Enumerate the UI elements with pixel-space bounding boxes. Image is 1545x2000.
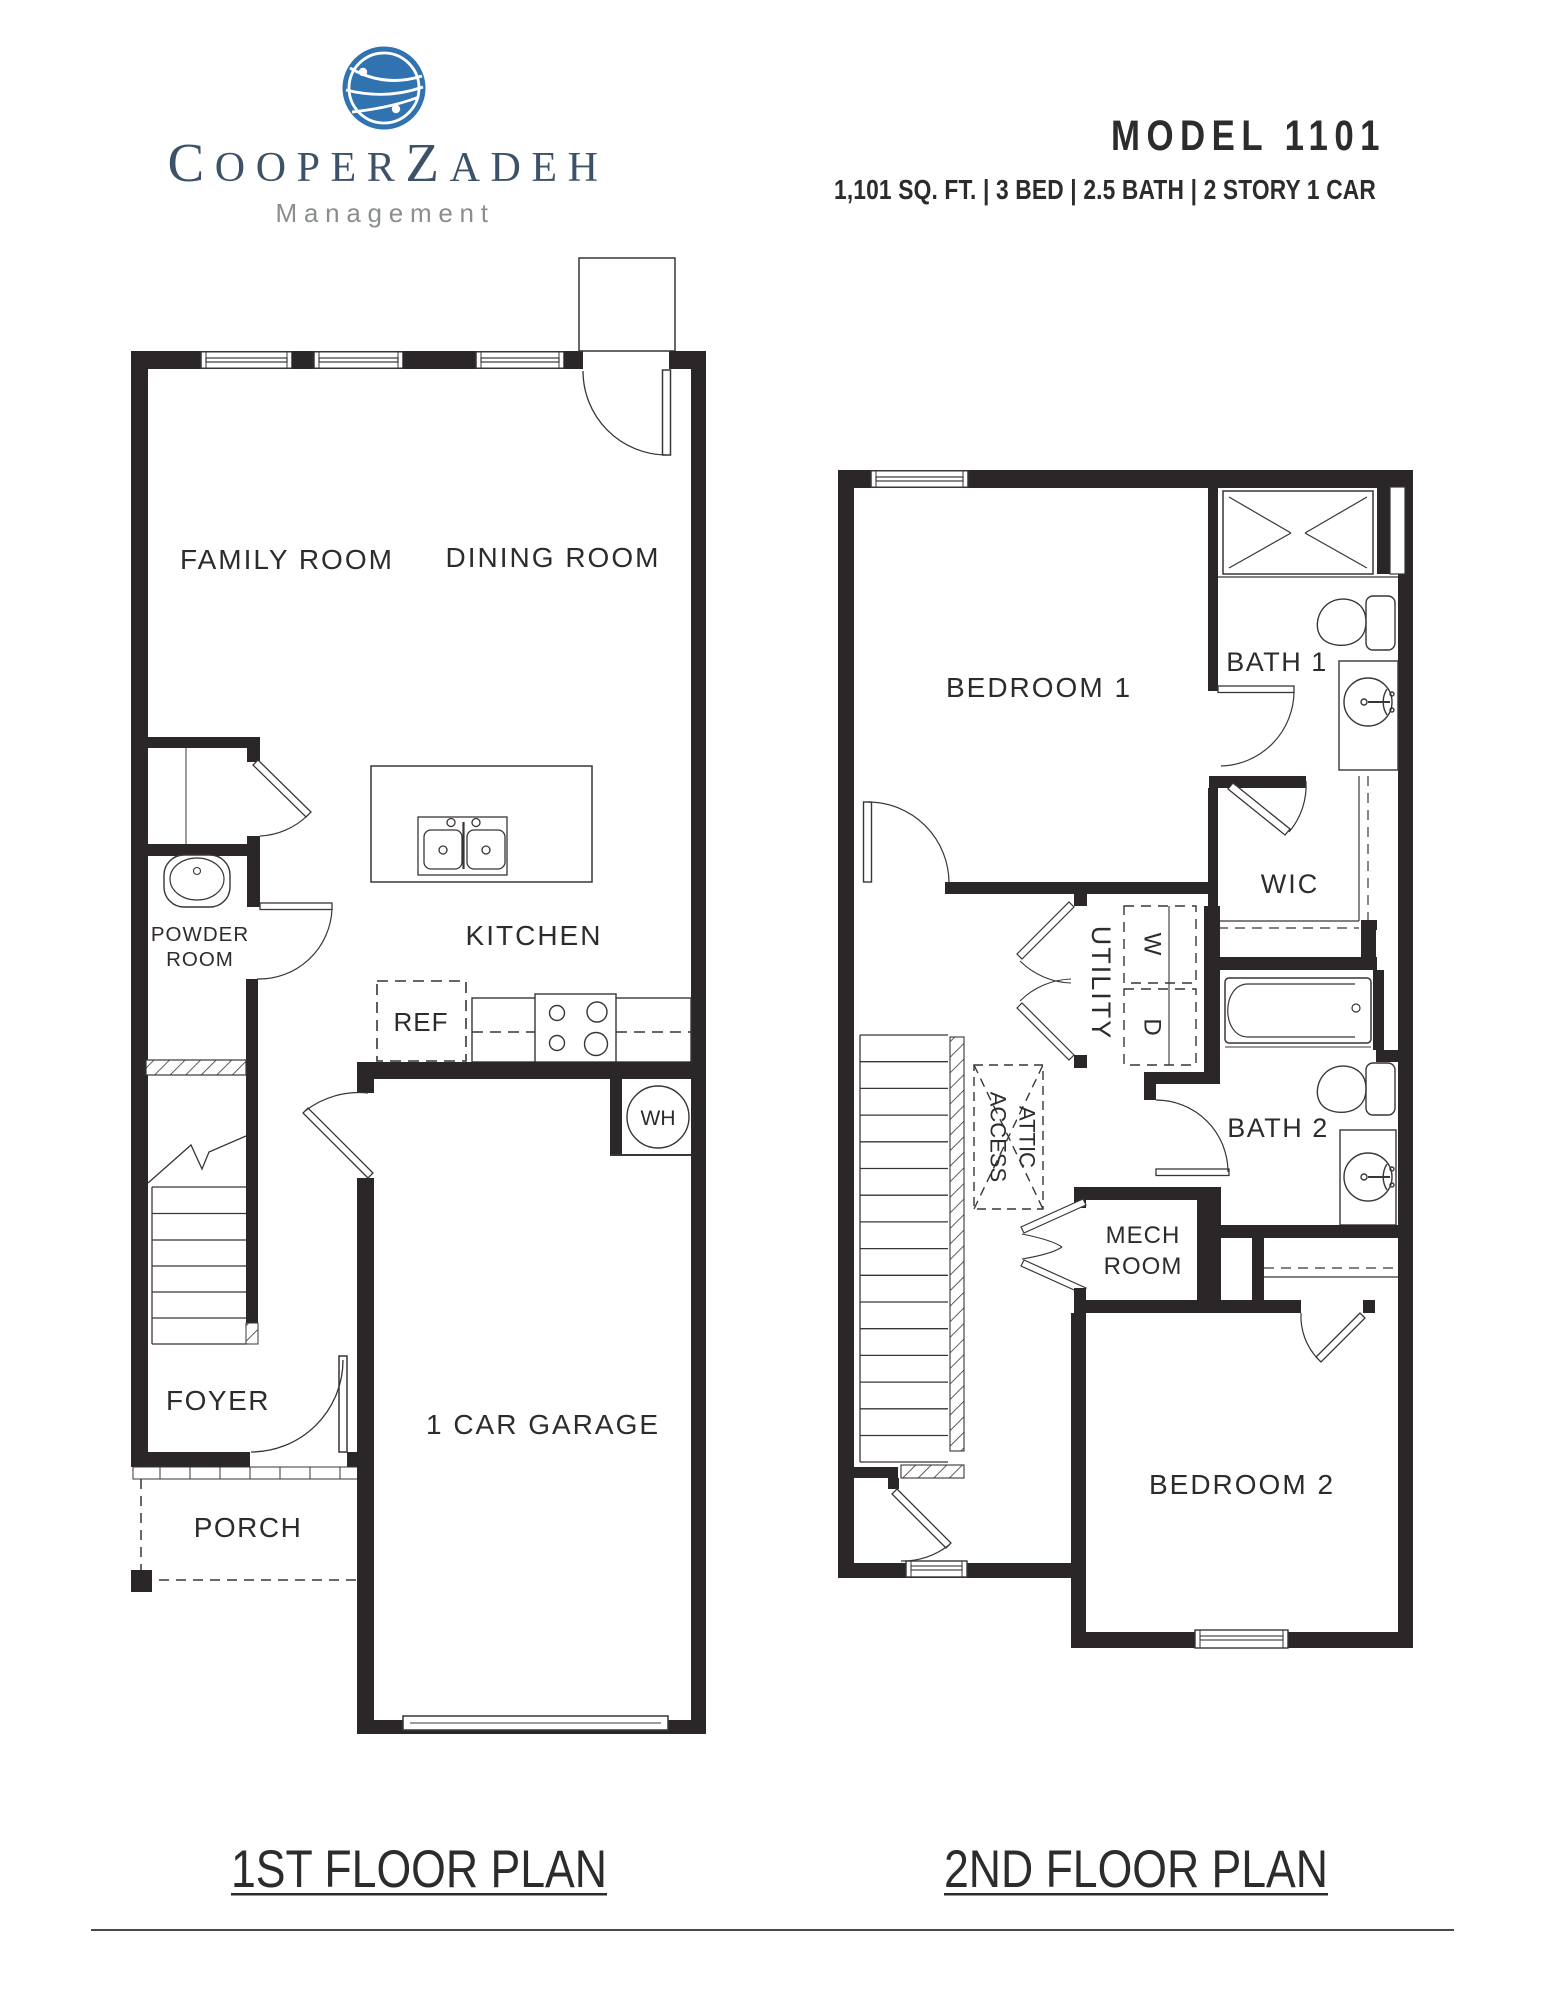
svg-text:DINING ROOM: DINING ROOM	[446, 542, 661, 573]
svg-text:WIC: WIC	[1261, 869, 1319, 899]
svg-text:1,101 SQ. FT. | 3 BED | 2.5 BA: 1,101 SQ. FT. | 3 BED | 2.5 BATH | 2 STO…	[834, 174, 1376, 205]
svg-text:FOYER: FOYER	[166, 1385, 270, 1416]
svg-text:REF: REF	[394, 1007, 449, 1037]
svg-text:KITCHEN: KITCHEN	[466, 920, 603, 951]
svg-text:BEDROOM 2: BEDROOM 2	[1149, 1469, 1335, 1500]
svg-text:BATH 2: BATH 2	[1227, 1113, 1329, 1143]
svg-text:FAMILY ROOM: FAMILY ROOM	[180, 544, 394, 575]
svg-text:1 CAR GARAGE: 1 CAR GARAGE	[426, 1409, 660, 1440]
svg-text:ROOM: ROOM	[1104, 1253, 1183, 1280]
svg-text:POWDER: POWDER	[151, 923, 249, 946]
svg-text:MECH: MECH	[1106, 1222, 1181, 1249]
svg-text:W: W	[1139, 933, 1166, 956]
svg-text:1ST FLOOR PLAN: 1ST FLOOR PLAN	[231, 1840, 607, 1899]
svg-text:Management: Management	[276, 198, 493, 228]
svg-text:WH: WH	[641, 1107, 676, 1130]
svg-text:MODEL 1101: MODEL 1101	[1111, 112, 1386, 160]
svg-text:ROOM: ROOM	[166, 948, 234, 971]
svg-text:BATH 1: BATH 1	[1226, 647, 1328, 677]
svg-text:BEDROOM 1: BEDROOM 1	[946, 672, 1132, 703]
svg-text:PORCH: PORCH	[194, 1512, 303, 1543]
svg-text:ACCESS: ACCESS	[986, 1092, 1011, 1182]
svg-text:UTILITY: UTILITY	[1086, 926, 1116, 1041]
svg-text:2ND FLOOR PLAN: 2ND FLOOR PLAN	[944, 1840, 1328, 1899]
svg-text:D: D	[1139, 1018, 1166, 1035]
svg-text:ATTIC: ATTIC	[1015, 1106, 1040, 1168]
